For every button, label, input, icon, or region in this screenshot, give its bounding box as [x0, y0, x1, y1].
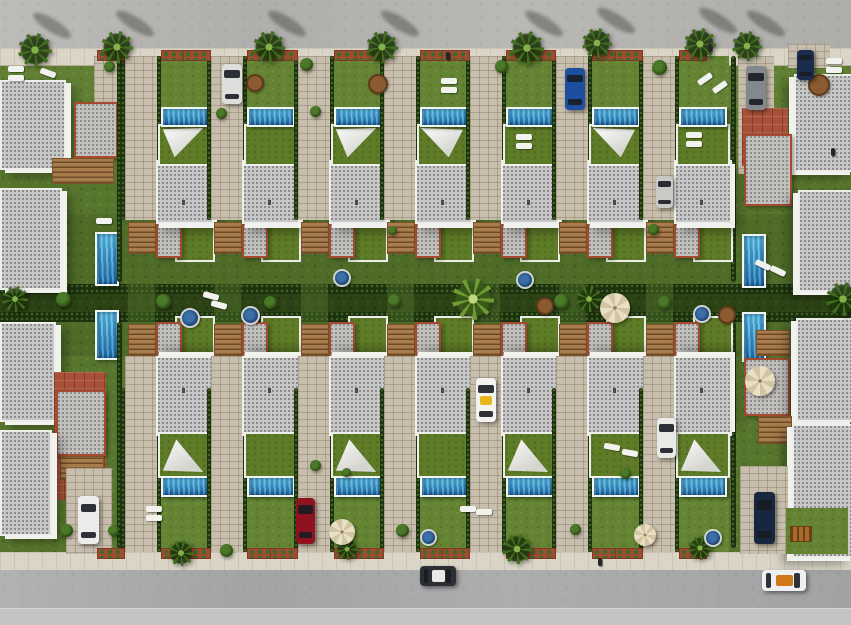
shade-sail [593, 128, 635, 158]
parasol-umbrella [329, 519, 355, 545]
sun-lounger [8, 66, 24, 72]
car-rear-window [479, 411, 493, 417]
swimming-pool [161, 107, 209, 127]
bush [658, 296, 671, 309]
villa-roof [415, 356, 473, 436]
navy-car-top-right [797, 50, 814, 80]
car-windshield [659, 424, 673, 431]
roof-terrace [417, 432, 471, 478]
edge-building-roof [0, 430, 52, 536]
bush [396, 524, 409, 537]
shade-sail [421, 128, 463, 158]
driveway [556, 356, 588, 552]
villa-roof [501, 356, 559, 436]
sun-lounger [146, 515, 162, 521]
shade-sail [335, 438, 377, 472]
car-rear-window [424, 569, 428, 583]
hedge-strip [639, 56, 643, 220]
roof-vent [268, 388, 271, 393]
driveway [470, 56, 502, 220]
parasol-umbrella [745, 366, 775, 396]
roof-vent [700, 388, 703, 393]
planter-box [356, 548, 384, 559]
roof-vent [700, 200, 703, 205]
car-windshield [224, 70, 239, 77]
roof-terrace [158, 124, 212, 166]
driveway [384, 56, 416, 220]
palm-tree [576, 286, 602, 312]
sun-lounger [476, 509, 492, 515]
pedestrian [831, 148, 835, 156]
garden-stairs [301, 222, 329, 254]
shade-sail [162, 438, 204, 472]
bush [554, 294, 569, 309]
wooden-deck-stairs [52, 158, 114, 184]
roof-vent [182, 388, 185, 393]
swimming-pool [420, 476, 468, 497]
bush [388, 294, 401, 307]
villa-roof [674, 160, 732, 224]
planter-box [270, 548, 298, 559]
garden-stairs [128, 324, 156, 356]
swimming-pool [592, 107, 640, 127]
annex-roof [74, 102, 118, 158]
palm-tree [18, 33, 52, 67]
car-rear-window [299, 532, 313, 538]
hedge-strip [552, 388, 556, 552]
bush [264, 296, 277, 309]
road-lower-slab [0, 608, 851, 625]
alley-gap [301, 284, 328, 322]
sun-lounger [516, 134, 532, 140]
round-jacuzzi [420, 529, 437, 546]
front-garden [588, 498, 642, 552]
round-jacuzzi [241, 306, 260, 325]
rear-annex-roof [329, 322, 355, 358]
sun-lounger [826, 58, 842, 64]
roof-vent [527, 200, 530, 205]
palm-tree [168, 540, 194, 566]
hedge-strip [121, 56, 125, 220]
rear-annex-roof [242, 322, 268, 358]
wooden-deck-stairs [756, 330, 790, 356]
driveway [384, 356, 416, 552]
play-structure [790, 526, 812, 542]
edge-building-roof [796, 318, 851, 422]
roof-terrace [676, 432, 730, 478]
garden-stairs [301, 324, 329, 356]
swimming-pool [334, 107, 382, 127]
planter-box [615, 548, 643, 559]
bush [310, 460, 321, 471]
car-windshield [658, 181, 671, 187]
bush [652, 60, 667, 75]
planter-box [183, 50, 211, 61]
car-accent [432, 570, 446, 581]
villa-roof [242, 356, 300, 436]
car-windshield [799, 55, 812, 60]
palm-tree [101, 31, 133, 63]
rear-annex-roof [415, 222, 441, 258]
edge-building-roof [0, 188, 62, 290]
palm-tree [452, 278, 494, 320]
bush [104, 61, 115, 72]
sun-lounger [441, 87, 457, 93]
car-windshield [794, 573, 800, 588]
garden-stairs [128, 222, 156, 254]
shade-sail [162, 128, 204, 158]
driveway [298, 56, 330, 220]
round-jacuzzi [333, 269, 351, 287]
parasol-umbrella [600, 293, 630, 323]
bush [570, 524, 581, 535]
swimming-pool [592, 476, 640, 497]
swimming-pool [247, 476, 295, 497]
shade-sail [680, 438, 722, 472]
sun-lounger [686, 132, 702, 138]
villa-roof [501, 160, 559, 224]
roof-terrace [331, 432, 385, 478]
sun-lounger [441, 78, 457, 84]
roof-terrace [503, 432, 557, 478]
palm-tree [732, 31, 762, 61]
garden-table [246, 74, 264, 92]
garden-stairs [214, 324, 242, 356]
roof-vent [527, 388, 530, 393]
roof-terrace [417, 124, 471, 166]
villa-roof [415, 160, 473, 224]
edge-building-roof [0, 322, 56, 422]
driveway [211, 356, 243, 552]
hedge-strip [207, 388, 211, 552]
alley-gap [128, 284, 155, 322]
car-windshield [478, 385, 493, 393]
sun-lounger [460, 506, 476, 512]
bush [220, 544, 233, 557]
garden-table [536, 297, 554, 315]
car-rear-window [81, 532, 96, 539]
rear-annex-roof [674, 222, 700, 258]
car-accent [776, 575, 793, 587]
bush [300, 58, 313, 71]
round-jacuzzi [704, 529, 722, 547]
rear-annex-roof [587, 322, 613, 358]
rear-annex-roof [415, 322, 441, 358]
pedestrian [708, 44, 712, 52]
villa-roof [156, 356, 214, 436]
car-windshield [81, 504, 97, 513]
parasol-umbrella [634, 524, 656, 546]
bush [56, 292, 71, 307]
rear-annex-roof [329, 222, 355, 258]
shade-sail [507, 438, 549, 472]
swimming-pool [247, 107, 295, 127]
sun-lounger [516, 143, 532, 149]
gray-van-mid-right [656, 176, 673, 208]
garden-table [368, 74, 388, 94]
car-rear-window [757, 531, 772, 538]
hedge-strip [552, 56, 556, 220]
swimming-pool [334, 476, 382, 497]
sun-lounger [8, 75, 24, 81]
roof-vent [182, 200, 185, 205]
edge-building-roof [0, 80, 66, 170]
car-rear-window [568, 99, 582, 105]
round-jacuzzi [693, 305, 711, 323]
garden-table [718, 306, 736, 324]
rear-annex-roof [156, 222, 182, 258]
planter-box [528, 548, 556, 559]
garden-stairs [646, 324, 674, 356]
swimming-pool [679, 476, 727, 497]
car-rear-window [225, 94, 239, 100]
bush [388, 226, 397, 235]
hedge-strip [466, 56, 470, 220]
car-rear-window [660, 448, 674, 454]
hedge-strip [380, 388, 384, 552]
blue-car-top [565, 68, 585, 110]
rear-annex-roof [587, 222, 613, 258]
roof-vent [268, 200, 271, 205]
white-sports-car-bottom-left [78, 496, 99, 544]
navy-car-bottom-right [754, 492, 775, 544]
roof-vent [613, 388, 616, 393]
roof-terrace [158, 432, 212, 478]
palm-tree [2, 286, 28, 312]
planter-box [442, 548, 470, 559]
car-windshield [298, 505, 312, 513]
garden-stairs [473, 222, 501, 254]
car-windshield [446, 569, 451, 583]
swimming-pool [506, 476, 554, 497]
sun-lounger [96, 218, 112, 224]
sun-lounger [826, 67, 842, 73]
garden-stairs [559, 324, 587, 356]
roof-vent [613, 200, 616, 205]
taxi-driveway [476, 378, 496, 422]
sun-lounger [146, 506, 162, 512]
hedge-strip [207, 56, 211, 220]
swimming-pool [161, 476, 209, 497]
side-swimming-pool [95, 310, 119, 360]
bush [310, 106, 321, 117]
roof-terrace [676, 124, 730, 166]
car-rear-window [658, 200, 670, 204]
palm-tree [502, 534, 532, 564]
car-windshield [748, 73, 763, 81]
villa-roof [674, 356, 732, 436]
front-garden [588, 56, 642, 108]
round-jacuzzi [180, 308, 200, 328]
front-garden [157, 56, 211, 108]
shade-sail [335, 128, 377, 158]
suv-on-road [420, 566, 456, 586]
rear-annex-roof [674, 322, 700, 358]
palm-tree [582, 28, 612, 58]
bush [216, 108, 227, 119]
edge-building-roof [798, 190, 851, 292]
palm-tree [510, 31, 544, 65]
bush [648, 224, 659, 235]
villa-roof [329, 160, 387, 224]
garden-stairs [214, 222, 242, 254]
white-van-bottom-right [657, 418, 676, 458]
palm-tree [366, 31, 398, 63]
rear-annex-roof [501, 222, 527, 258]
garden-stairs [559, 222, 587, 254]
swimming-pool [420, 107, 468, 127]
swimming-pool [679, 107, 727, 127]
bush [342, 468, 351, 477]
roof-vent [355, 200, 358, 205]
pedestrian [446, 52, 450, 60]
wooden-deck-stairs [758, 416, 792, 444]
roof-terrace [589, 124, 643, 166]
red-car-bottom [296, 498, 315, 544]
villa-roof [587, 356, 645, 436]
hedge-strip [294, 56, 298, 220]
convertible-on-road [762, 570, 806, 591]
driveway [125, 56, 157, 220]
roof-vent [441, 388, 444, 393]
bush [108, 525, 119, 536]
villa-roof [242, 160, 300, 224]
annex-roof [744, 134, 792, 206]
garden-stairs [473, 324, 501, 356]
palm-tree [253, 31, 285, 63]
bush [60, 524, 73, 537]
villa-roof [156, 160, 214, 224]
bush [620, 468, 631, 479]
front-garden [243, 498, 297, 552]
car-windshield [757, 500, 773, 509]
side-swimming-pool [95, 232, 119, 286]
bush [495, 60, 508, 73]
bush [156, 294, 171, 309]
car-rear-window [799, 72, 811, 76]
rear-annex-roof [501, 322, 527, 358]
car-windshield [567, 75, 582, 83]
villa-roof [587, 160, 645, 224]
planter-box [615, 50, 643, 61]
roof-terrace [331, 124, 385, 166]
sun-lounger [686, 141, 702, 147]
roof-vent [355, 388, 358, 393]
annex-roof [56, 390, 106, 456]
car-rear-window [749, 99, 763, 105]
aerial-development-render [0, 0, 851, 625]
roof-terrace [244, 124, 298, 166]
pedestrian [598, 558, 602, 566]
villa-roof [329, 356, 387, 436]
rear-annex-roof [242, 222, 268, 258]
car-rear-window [766, 573, 771, 587]
gray-car-top-right [746, 66, 766, 110]
swimming-pool [506, 107, 554, 127]
round-jacuzzi [516, 271, 534, 289]
hedge-strip [466, 388, 470, 552]
driveway [125, 356, 157, 552]
roof-terrace [244, 432, 298, 478]
hedge-strip [121, 388, 125, 552]
garden-stairs [387, 324, 415, 356]
rear-annex-roof [156, 322, 182, 358]
white-suv-top [222, 64, 242, 104]
roof-vent [441, 200, 444, 205]
planter-box [97, 548, 125, 559]
car-accent [480, 396, 493, 406]
